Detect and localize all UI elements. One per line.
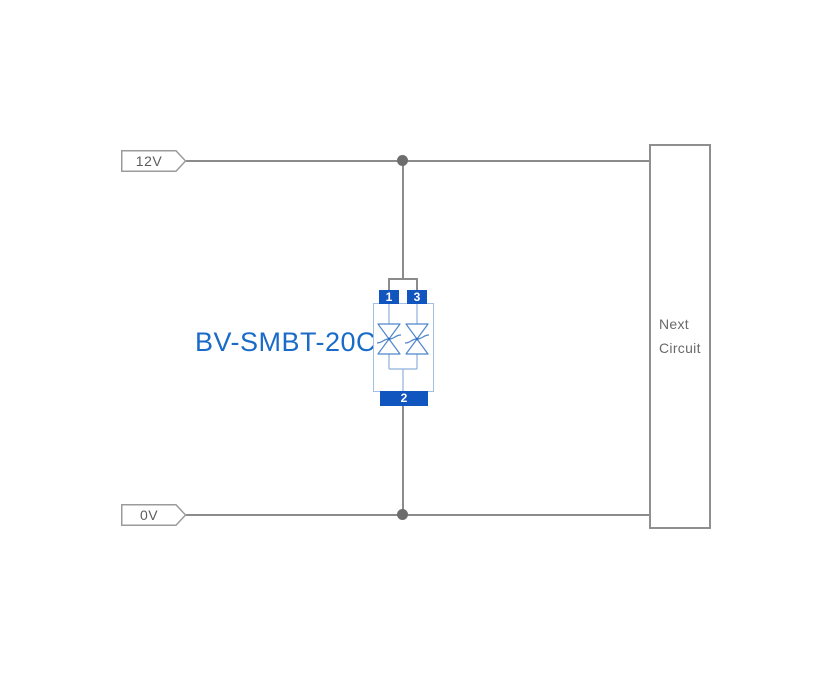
net-tag-12v: 12V: [121, 150, 187, 172]
internal-leads: [389, 303, 417, 392]
wire-0v-rail: [186, 514, 651, 516]
component-label: BV-SMBT-20CA: [195, 327, 395, 358]
pin-2: 2: [380, 391, 428, 406]
tvs-diode-symbol-left: [377, 324, 401, 354]
net-tag-0v: 0V: [121, 504, 187, 526]
next-circuit-label: Next Circuit: [651, 313, 709, 359]
wire-vertical-bottom: [402, 404, 404, 516]
wire-pin-bracket: [388, 278, 418, 280]
net-label-0v: 0V: [121, 504, 177, 526]
pin-3: 3: [407, 290, 427, 304]
next-circuit-box: Next Circuit: [649, 144, 711, 529]
junction-dot-top: [397, 155, 408, 166]
net-label-12v: 12V: [121, 150, 177, 172]
junction-dot-bottom: [397, 509, 408, 520]
wire-vertical-top: [402, 160, 404, 279]
tvs-diode-symbol-right: [405, 324, 429, 354]
circuit-diagram: 12V 0V BV-SMBT-20CA 1 3 2 Nex: [0, 0, 832, 675]
wire-12v-rail: [186, 160, 651, 162]
pin-1: 1: [379, 290, 399, 304]
component-internal-circuit: [373, 303, 434, 392]
